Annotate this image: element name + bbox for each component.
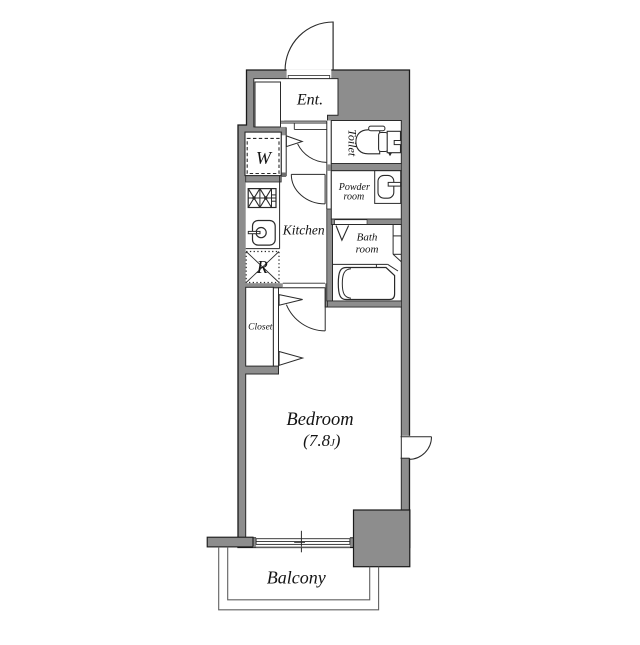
svg-text:Bath: Bath xyxy=(357,232,378,244)
svg-text:W: W xyxy=(256,148,273,168)
svg-text:Bedroom: Bedroom xyxy=(286,410,353,430)
svg-text:Kitchen: Kitchen xyxy=(282,223,325,238)
svg-text:Ent.: Ent. xyxy=(296,92,323,109)
svg-text:R: R xyxy=(256,257,268,277)
svg-text:Closet: Closet xyxy=(248,323,273,333)
svg-text:Balcony: Balcony xyxy=(267,568,326,588)
svg-text:room: room xyxy=(356,243,379,255)
svg-text:room: room xyxy=(344,192,365,203)
svg-text:(7.8J): (7.8J) xyxy=(303,431,341,450)
